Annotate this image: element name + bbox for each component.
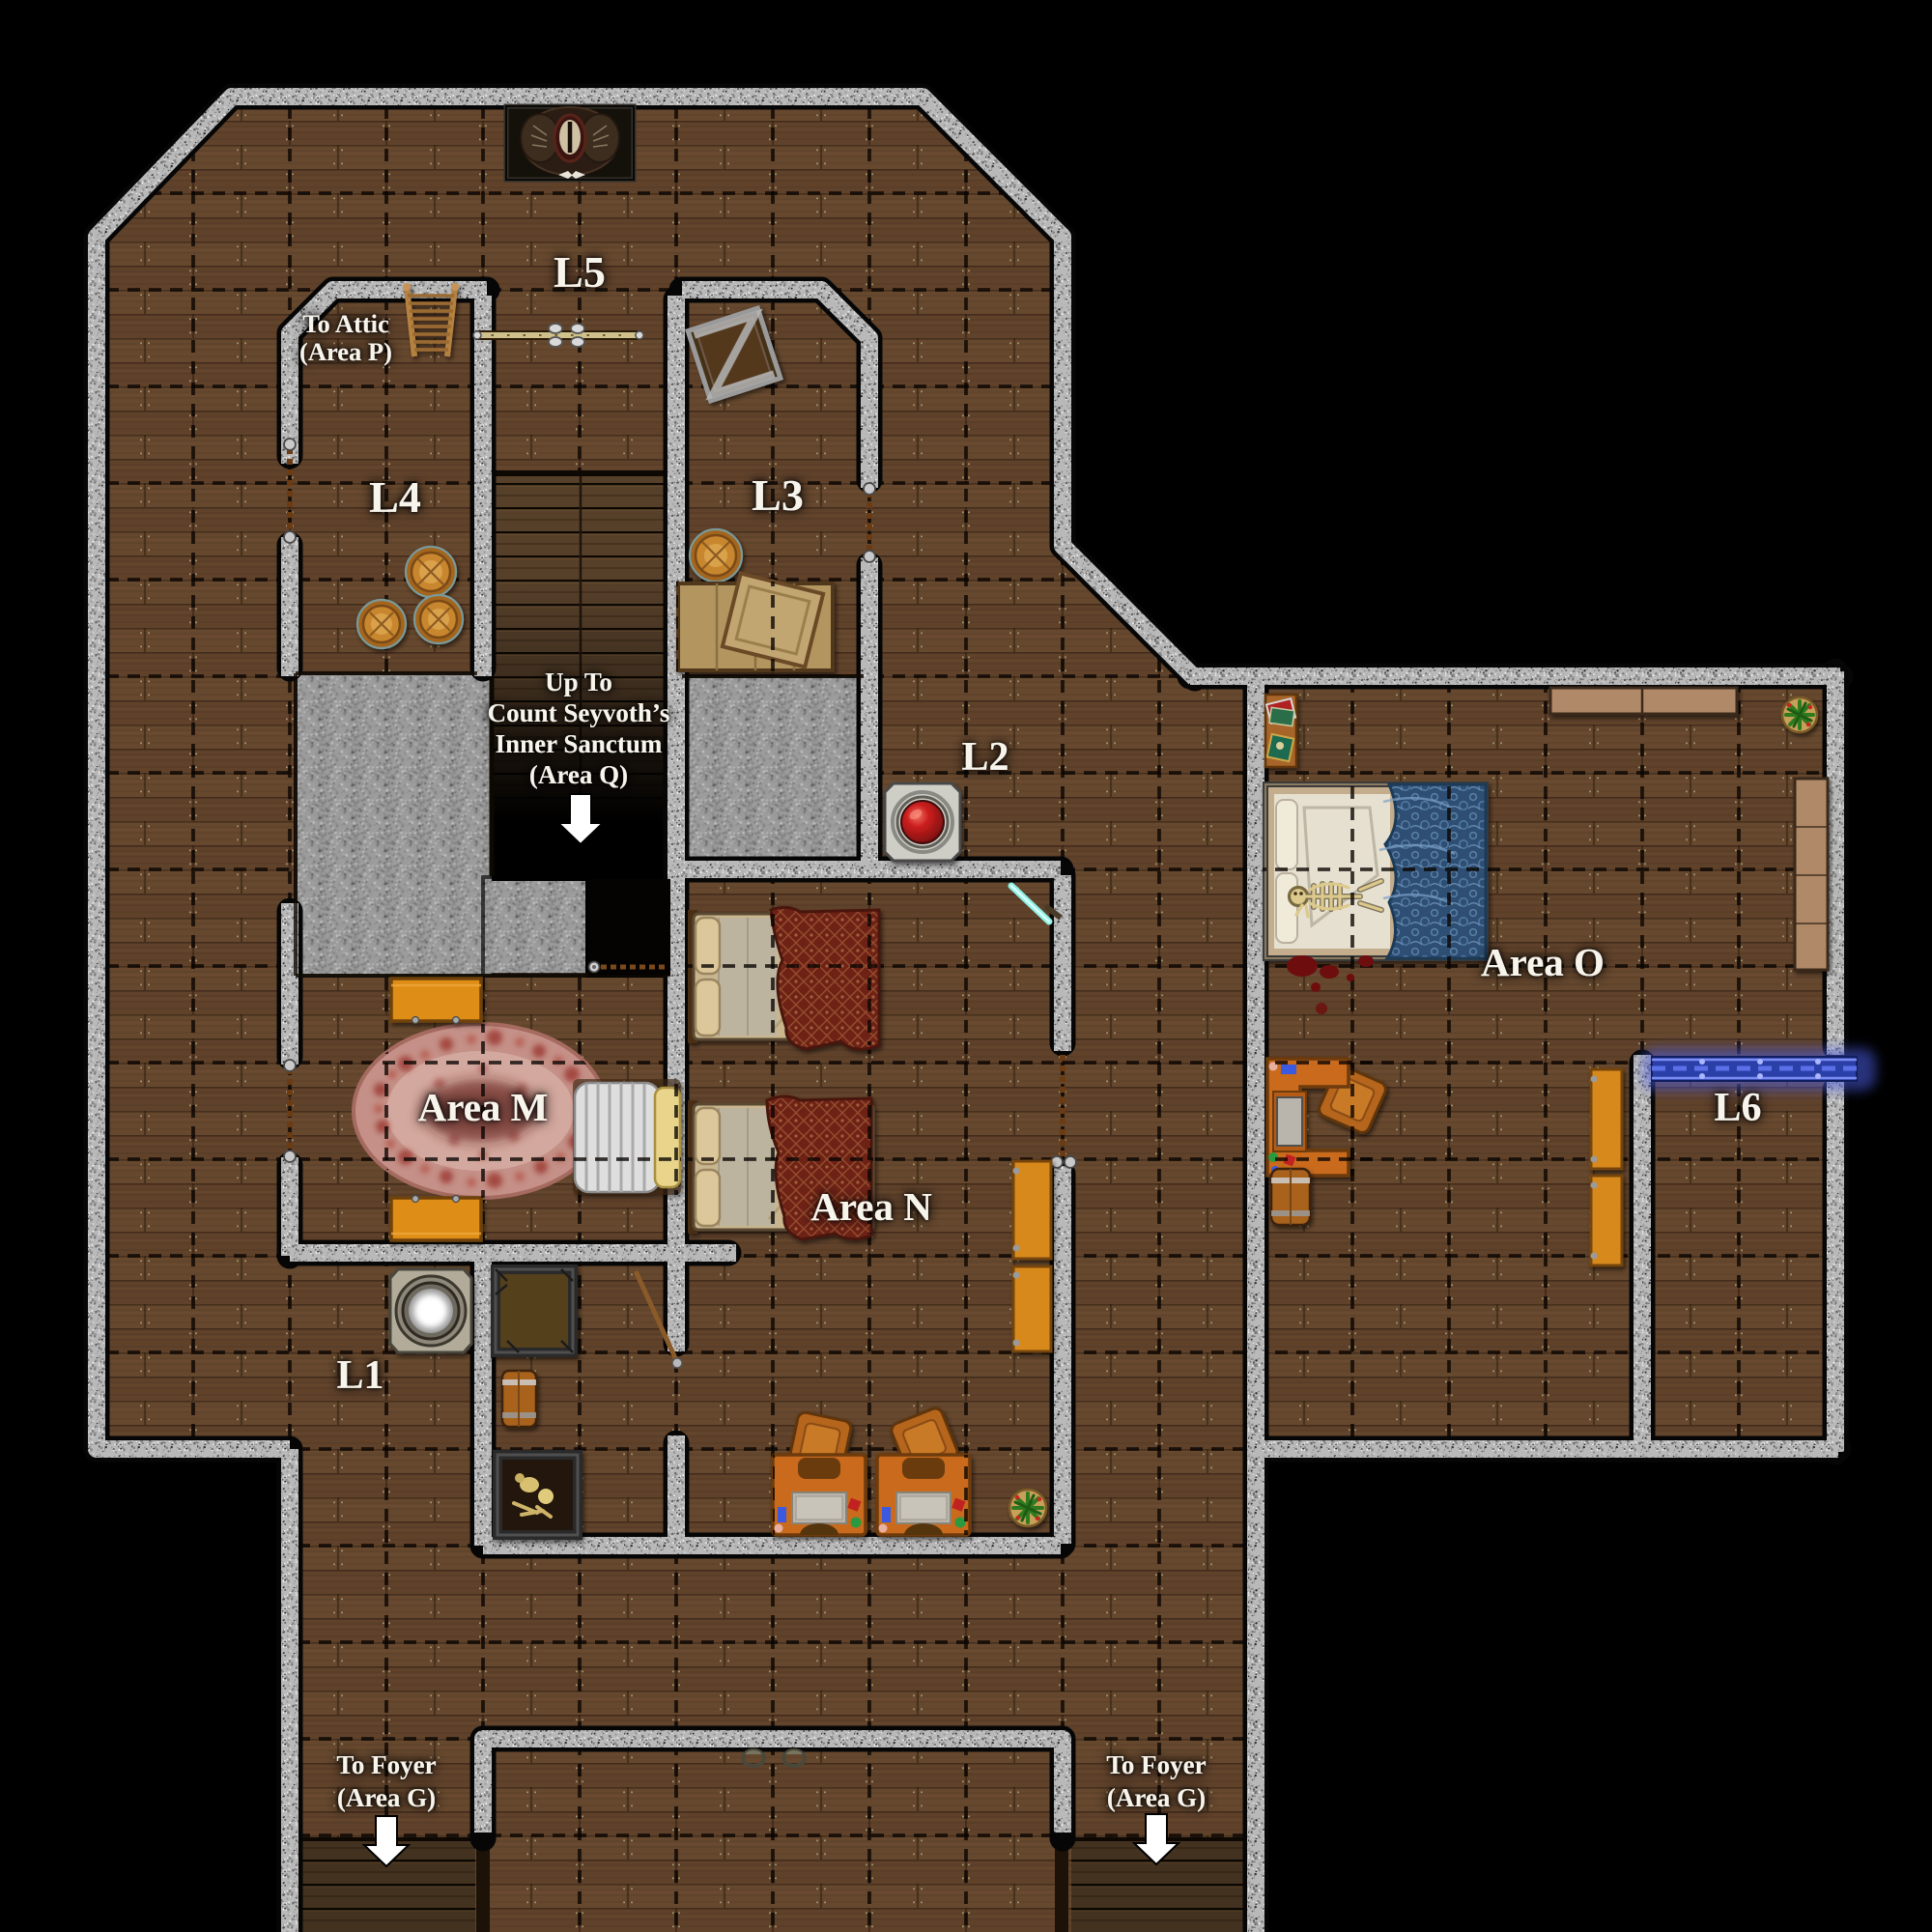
svg-text:To Foyer: To Foyer (1106, 1750, 1206, 1779)
svg-text:Inner Sanctum: Inner Sanctum (496, 729, 663, 758)
svg-text:L4: L4 (369, 472, 421, 522)
svg-text:Up To: Up To (545, 668, 612, 696)
svg-text:L2: L2 (961, 735, 1009, 780)
svg-text:L3: L3 (752, 470, 804, 520)
svg-text:L6: L6 (1714, 1086, 1761, 1130)
svg-text:Area O: Area O (1481, 940, 1605, 984)
svg-text:(Area G): (Area G) (1107, 1783, 1206, 1812)
svg-text:Area M: Area M (418, 1085, 549, 1129)
svg-text:(Area P): (Area P) (299, 337, 392, 366)
svg-text:(Area G): (Area G) (337, 1783, 436, 1812)
svg-text:To Foyer: To Foyer (336, 1750, 436, 1779)
svg-text:L1: L1 (336, 1353, 384, 1398)
svg-text:L5: L5 (554, 247, 606, 297)
svg-text:Count Seyvoth’s: Count Seyvoth’s (488, 698, 670, 727)
svg-text:(Area Q): (Area Q) (529, 760, 628, 789)
svg-text:Area N: Area N (810, 1184, 932, 1229)
svg-text:To Attic: To Attic (302, 309, 389, 338)
